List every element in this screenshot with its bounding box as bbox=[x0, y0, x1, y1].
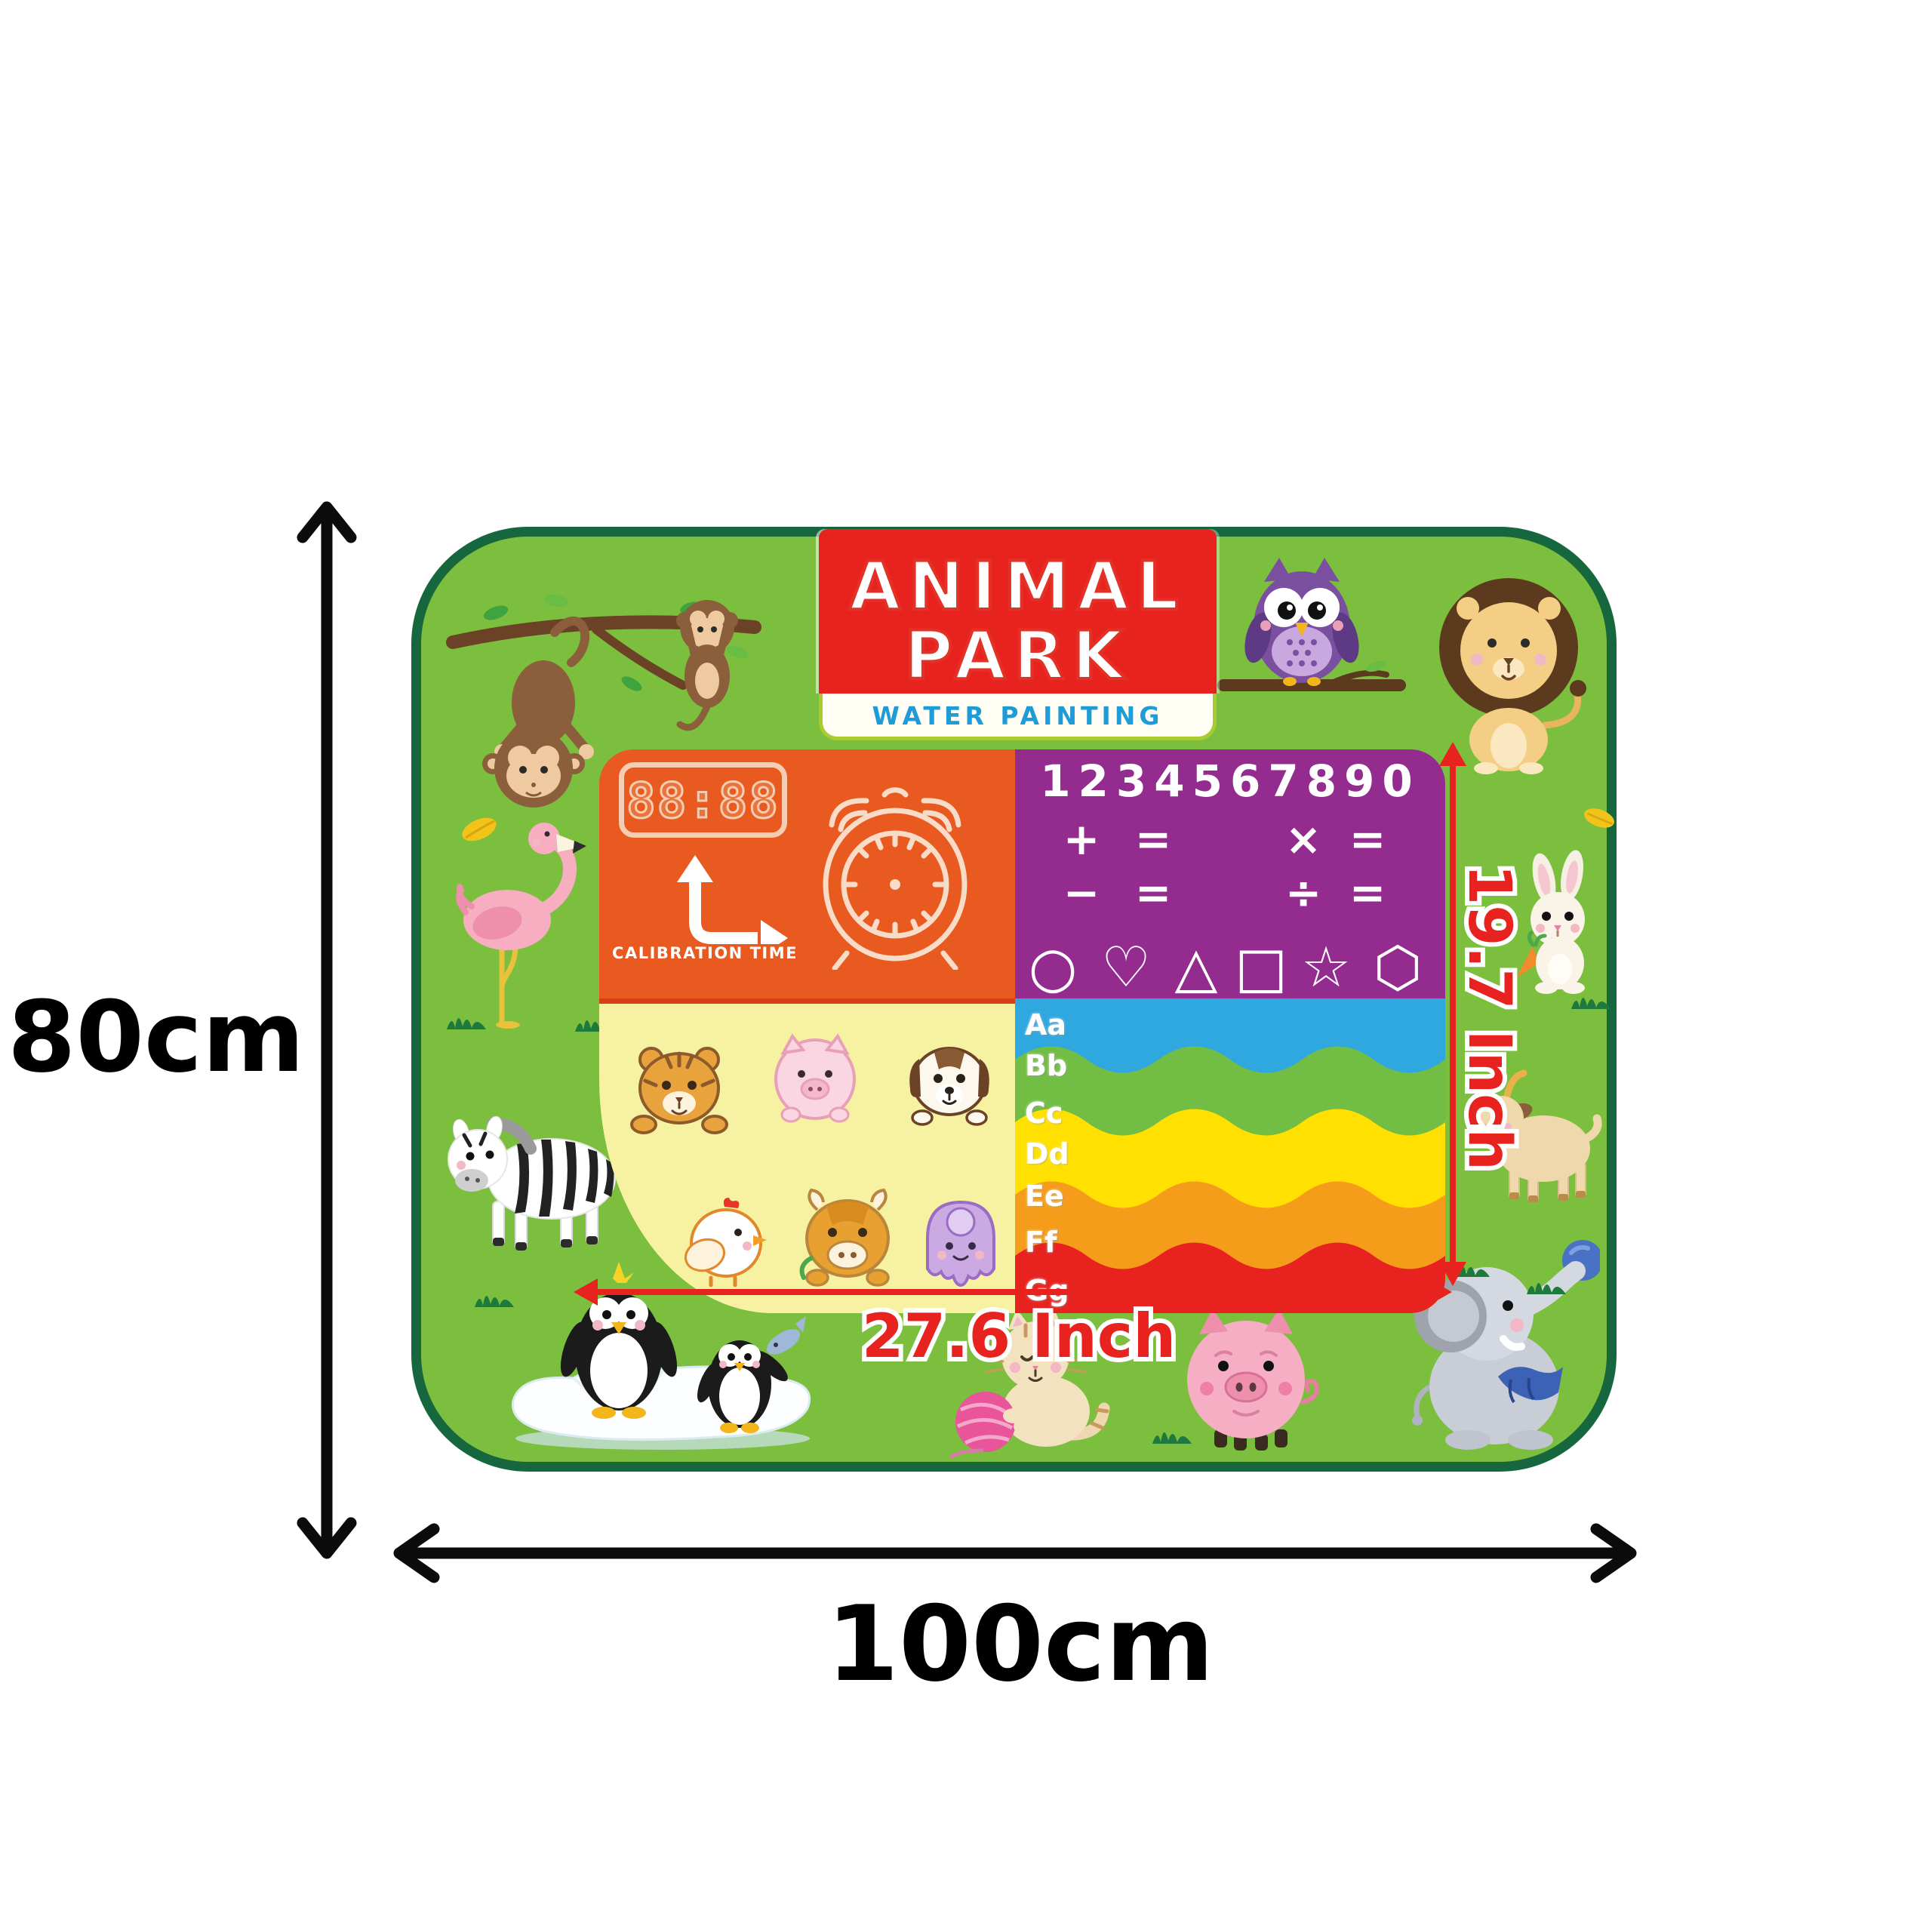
grass-icon bbox=[473, 1285, 515, 1308]
equals-sign: = bbox=[1135, 867, 1172, 918]
title-line2: PARK bbox=[819, 617, 1217, 694]
tiger-sticker bbox=[623, 1034, 736, 1140]
divide-sign: ÷ bbox=[1285, 867, 1322, 918]
arrow-left-icon bbox=[574, 1278, 598, 1306]
numbers-row: 1234567890 bbox=[1037, 755, 1423, 807]
digital-clock-icon: 88:88 bbox=[619, 762, 787, 838]
arrow-right-icon bbox=[1428, 1278, 1452, 1306]
title-line1: ANIMAL bbox=[819, 547, 1217, 625]
width-cm-arrow bbox=[381, 1517, 1649, 1589]
owl-illustration bbox=[1217, 546, 1406, 712]
letter-Dd: Dd bbox=[1025, 1137, 1069, 1171]
grass-icon bbox=[445, 1008, 488, 1030]
chicken-sticker bbox=[672, 1196, 777, 1291]
svg-text:27.6 Inch: 27.6 Inch bbox=[862, 1301, 1176, 1371]
width-cm-label: 100cm bbox=[826, 1583, 1196, 1705]
equals-sign: = bbox=[1349, 814, 1386, 865]
pig-illustration bbox=[1171, 1297, 1321, 1451]
digital-clock-display: 88:88 bbox=[624, 774, 782, 829]
letter-Cc: Cc bbox=[1025, 1097, 1063, 1130]
height-inch-label: 19.7 Inch bbox=[1453, 855, 1525, 1180]
arrow-up-icon bbox=[1439, 742, 1466, 766]
height-inch-label-wrap: 19.7 Inch bbox=[1453, 855, 1525, 1180]
calibration-clock-panel: 88:88 CALIBRATION TIME bbox=[599, 749, 1015, 1004]
flamingo-illustration bbox=[443, 816, 598, 1038]
letter-Ee: Ee bbox=[1025, 1180, 1064, 1213]
activity-panel: 88:88 CALIBRATION TIME bbox=[599, 749, 1445, 1313]
rainbow-waves-panel bbox=[1015, 998, 1445, 1313]
circle-shape-icon: ○ bbox=[1029, 935, 1078, 1000]
triangle-shape-icon: △ bbox=[1175, 935, 1218, 1000]
pig-sticker bbox=[762, 1030, 868, 1128]
leaf-icon bbox=[1580, 803, 1617, 833]
minus-sign: − bbox=[1063, 867, 1100, 918]
square-shape-icon: □ bbox=[1235, 935, 1287, 1000]
letter-Aa: Aa bbox=[1025, 1008, 1066, 1041]
calibration-arrow-icon bbox=[666, 846, 794, 944]
width-dimension-line bbox=[596, 1289, 1429, 1295]
octopus-sticker bbox=[912, 1196, 1010, 1294]
leaf-icon bbox=[457, 812, 502, 847]
letter-Bb: Bb bbox=[1025, 1049, 1067, 1082]
grass-icon bbox=[1570, 987, 1612, 1010]
alarm-clock-icon bbox=[811, 775, 980, 970]
equals-sign: = bbox=[1135, 814, 1172, 865]
star-shape-icon: ☆ bbox=[1301, 935, 1351, 1000]
letter-Ff: Ff bbox=[1025, 1226, 1057, 1259]
hexagon-shape-icon: ⬡ bbox=[1374, 935, 1423, 1000]
heart-shape-icon: ♡ bbox=[1101, 935, 1151, 1000]
product-dimension-diagram: 88:88 CALIBRATION TIME bbox=[0, 0, 1932, 1932]
grass-icon bbox=[1151, 1422, 1193, 1444]
grass-icon bbox=[1525, 1272, 1567, 1295]
title-banner: ANIMAL PARK bbox=[819, 529, 1217, 694]
height-cm-label: 80cm bbox=[8, 980, 302, 1094]
ox-sticker bbox=[789, 1186, 906, 1287]
width-inch-label: 27.6 Inch bbox=[853, 1300, 1185, 1372]
calibration-caption: CALIBRATION TIME bbox=[599, 944, 811, 962]
plus-sign: + bbox=[1063, 814, 1100, 865]
dog-sticker bbox=[897, 1032, 1002, 1130]
subtitle-text: WATER PAINTING bbox=[823, 701, 1213, 731]
svg-text:19.7 Inch: 19.7 Inch bbox=[1455, 864, 1523, 1171]
subtitle-banner: WATER PAINTING bbox=[819, 694, 1217, 740]
multiply-sign: × bbox=[1285, 814, 1322, 865]
equals-sign: = bbox=[1349, 867, 1386, 918]
